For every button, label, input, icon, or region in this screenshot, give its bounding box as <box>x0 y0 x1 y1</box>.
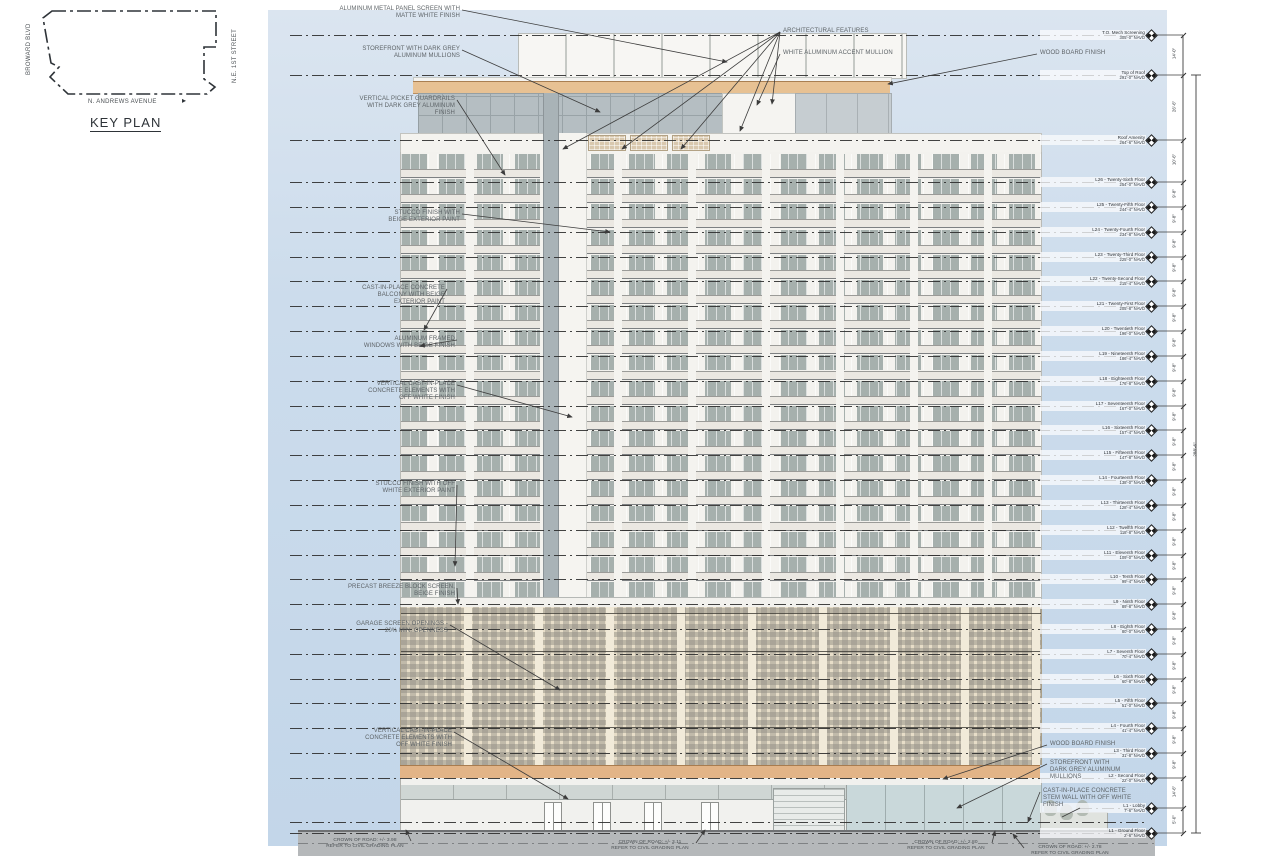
level-label: L25 - Twenty-Fifth Floor244'-4" NAVD <box>1040 202 1146 212</box>
spandrel <box>401 219 1041 227</box>
level-line <box>290 555 1145 556</box>
level-label: L4 - Fourth Floor41'-4" NAVD <box>1040 723 1146 733</box>
spandrel <box>401 421 1041 429</box>
level-line <box>290 679 1145 680</box>
annotation-label: PRECAST BREEZE BLOCK SCREEN, BEIGE FINIS… <box>295 584 455 598</box>
tower-floor <box>401 555 1041 581</box>
level-label: L16 - Sixteenth Floor157'-4" NAVD <box>1040 425 1146 435</box>
window-row <box>401 481 1041 496</box>
level-label: L11 - Eleventh Floor109'-0" NAVD <box>1040 550 1146 560</box>
dim-label: 9'-8" <box>1172 206 1177 230</box>
dim-tick <box>1180 528 1186 534</box>
dim-tick <box>1180 577 1186 583</box>
level-line <box>290 331 1145 332</box>
dim-tick <box>1180 806 1186 812</box>
level-label: Roof Amenity264'-6" NAVD <box>1040 135 1146 145</box>
dim-label: 9'-8" <box>1172 752 1177 776</box>
spandrel <box>401 522 1041 530</box>
annotation-label: WOOD BOARD FINISH <box>1040 50 1105 57</box>
level-line <box>290 654 1145 655</box>
spandrel <box>401 496 1041 504</box>
key-plan-street-bottom: N. ANDREWS AVENUE <box>88 99 157 105</box>
annotation-label: STOREFRONT WITH DARK GREY ALUMINUM MULLI… <box>1050 760 1120 781</box>
spandrel <box>401 320 1041 328</box>
storefront-door <box>644 802 662 832</box>
level-label: L3 - Third Floor31'-8" NAVD <box>1040 748 1146 758</box>
key-plan-title: KEY PLAN <box>90 115 161 132</box>
elevation-sheet: BROWARD BLVD N.E. 1ST STREET N. ANDREWS … <box>0 0 1269 864</box>
architectural-feature <box>672 135 710 151</box>
annotation-label: VERTICAL CAST-IN-PLACE CONCRETE ELEMENTS… <box>292 728 452 749</box>
level-line <box>290 778 1145 779</box>
spandrel <box>401 371 1041 379</box>
window-row <box>401 381 1041 396</box>
level-label: L6 - Sixth Floor60'-8" NAVD <box>1040 674 1146 684</box>
annotation-label: STUCCO FINISH WITH BEIGE EXTERIOR PAINT <box>300 210 460 224</box>
spandrel <box>401 345 1041 353</box>
dim-tick <box>1180 33 1186 39</box>
annotation-label: CAST-IN-PLACE CONCRETE BALCONY WITH BEIG… <box>285 285 445 306</box>
level-line <box>290 140 1145 141</box>
tower-facade <box>400 152 1042 605</box>
spandrel <box>401 446 1041 454</box>
dim-tick <box>1180 701 1186 707</box>
level-line <box>290 35 1145 36</box>
level-line <box>290 579 1145 580</box>
tower-floor <box>401 454 1041 480</box>
tower-wide-pier <box>557 133 587 605</box>
level-line <box>290 530 1145 531</box>
level-line <box>290 833 1145 834</box>
spandrel <box>401 396 1041 404</box>
level-line <box>290 604 1145 605</box>
dim-label: 9'-8" <box>1172 355 1177 379</box>
annotation-label: GARAGE SCREEN OPENINGS - 20% MIN. OPENNE… <box>288 621 448 635</box>
window-row <box>401 330 1041 345</box>
spandrel <box>401 245 1041 253</box>
tower-floor <box>401 353 1041 379</box>
level-label: L21 - Twenty-First Floor205'-8" NAVD <box>1040 301 1146 311</box>
dim-label: 9'-8" <box>1172 578 1177 602</box>
architectural-feature <box>630 135 668 151</box>
grade-dash-line <box>290 822 1145 823</box>
dim-label: 9'-8" <box>1172 653 1177 677</box>
dim-label: 9'-8" <box>1172 479 1177 503</box>
tower-floor <box>401 379 1041 405</box>
garage-facade <box>400 607 1042 765</box>
tower-floor <box>401 530 1041 556</box>
dim-tick <box>1180 553 1186 559</box>
level-label: L23 - Twenty-Third Floor225'-0" NAVD <box>1040 252 1146 262</box>
dim-label: 9'-8" <box>1172 529 1177 553</box>
level-label: L5 - Fifth Floor51'-0" NAVD <box>1040 698 1146 708</box>
dim-tick <box>1180 404 1186 410</box>
dim-label: 9'-8" <box>1172 603 1177 627</box>
level-line <box>290 306 1145 307</box>
level-label: L18 - Eighteenth Floor176'-8" NAVD <box>1040 376 1146 386</box>
window-row <box>401 406 1041 421</box>
dim-tick <box>1180 726 1186 732</box>
level-label: Top of Roof291'-0" NAVD <box>1040 70 1146 80</box>
level-label: L24 - Twenty-Fourth Floor234'-8" NAVD <box>1040 227 1146 237</box>
level-label: L20 - Twentieth Floor196'-0" NAVD <box>1040 326 1146 336</box>
annotation-label: WHITE ALUMINUM ACCENT MULLION <box>783 50 893 57</box>
spandrel <box>401 547 1041 555</box>
window-row <box>401 506 1041 521</box>
level-label: L15 - Fifteenth Floor147'-8" NAVD <box>1040 450 1146 460</box>
window-row <box>401 154 1041 169</box>
dim-tick <box>1180 453 1186 459</box>
level-line <box>290 430 1145 431</box>
spandrel <box>401 471 1041 479</box>
tower-floor <box>401 404 1041 430</box>
level-line <box>290 703 1145 704</box>
level-label: L13 - Thirteenth Floor128'-4" NAVD <box>1040 500 1146 510</box>
north-arrow-icon: ▸ <box>182 96 186 105</box>
architectural-feature <box>588 135 626 151</box>
level-label: T.O. Mech Screening305'-0" NAVD <box>1040 30 1146 40</box>
level-label: L17 - Seventeenth Floor167'-0" NAVD <box>1040 401 1146 411</box>
level-line <box>290 281 1145 282</box>
level-line <box>290 75 1145 76</box>
road-dash-line <box>298 843 1155 844</box>
dim-label: 9'-8" <box>1172 504 1177 528</box>
dim-tick <box>1180 255 1186 261</box>
dim-tick <box>1180 831 1186 837</box>
dim-tick <box>1180 602 1186 608</box>
dim-label: 9'-8" <box>1172 280 1177 304</box>
level-line <box>290 505 1145 506</box>
dim-label: 9'-8" <box>1172 678 1177 702</box>
annotation-label: ALUMINUM FRAMED WINDOWS WITH BEIGE FINIS… <box>295 336 455 350</box>
level-label: L9 - Ninth Floor89'-8" NAVD <box>1040 599 1146 609</box>
amenity-right-glass <box>795 93 892 135</box>
level-line <box>290 207 1145 208</box>
spandrel <box>401 270 1041 278</box>
dim-tick <box>1180 379 1186 385</box>
key-plan: BROWARD BLVD N.E. 1ST STREET N. ANDREWS … <box>10 5 260 145</box>
dim-label: 5'-0" <box>1172 807 1177 831</box>
level-label: L22 - Twenty-Second Floor215'-4" NAVD <box>1040 276 1146 286</box>
dim-label: 9'-8" <box>1172 454 1177 478</box>
core-strip <box>543 93 559 605</box>
dim-label: 9'-8" <box>1172 429 1177 453</box>
overall-dim-label: 288'-6" <box>1193 442 1198 456</box>
annotation-label: ARCHITECTURAL FEATURES <box>783 28 869 35</box>
dim-tick <box>1180 776 1186 782</box>
level-line <box>290 406 1145 407</box>
level-line <box>290 232 1145 233</box>
dim-tick <box>1180 73 1186 79</box>
dim-tick <box>1180 478 1186 484</box>
storefront-door <box>593 802 611 832</box>
dim-tick <box>1180 627 1186 633</box>
dim-label: 9'-8" <box>1172 181 1177 205</box>
level-line <box>290 182 1145 183</box>
dim-label: 9'-8" <box>1172 554 1177 578</box>
roller-shutter <box>773 788 845 832</box>
annotation-label: VERTICAL PICKET GUARDRAILS WITH DARK GRE… <box>295 96 455 117</box>
dim-tick <box>1180 677 1186 683</box>
dim-tick <box>1180 354 1186 360</box>
ground-glass-right <box>846 785 1042 830</box>
dim-tick <box>1180 428 1186 434</box>
tower-floor <box>401 429 1041 455</box>
window-row <box>401 582 1041 597</box>
dim-label: 14'-0" <box>1172 42 1177 66</box>
annotation-label: VERTICAL CAST-IN-PLACE CONCRETE ELEMENTS… <box>295 381 455 402</box>
annotation-label: CAST-IN-PLACE CONCRETE STEM WALL WITH OF… <box>1043 788 1131 809</box>
annotation-label: CROWN OF ROAD: +/- 3.98 REFER TO CIVIL G… <box>317 838 413 849</box>
annotation-label: CROWN OF ROAD: +/- 2.80 REFER TO CIVIL G… <box>898 840 994 851</box>
dim-tick <box>1180 503 1186 509</box>
dim-tick <box>1180 205 1186 211</box>
dim-tick <box>1180 279 1186 285</box>
dim-tick <box>1180 304 1186 310</box>
annotation-label: CROWN OF ROAD: +/- 2.78 REFER TO CIVIL G… <box>1022 845 1118 856</box>
level-label: L8 - Eighth Floor80'-0" NAVD <box>1040 624 1146 634</box>
key-plan-street-left: BROWARD BLVD <box>26 23 32 75</box>
dim-label: 10'-6" <box>1172 148 1177 172</box>
window-row <box>401 305 1041 320</box>
spandrel <box>401 169 1041 177</box>
dim-label: 14'-6" <box>1172 780 1177 804</box>
tower-floor <box>401 328 1041 354</box>
level-label: L1 - Ground Floor2'-6" NAVD <box>1040 828 1146 838</box>
annotation-label: STOREFRONT WITH DARK GREY ALUMINUM MULLI… <box>300 46 460 60</box>
level-line <box>290 455 1145 456</box>
dim-tick <box>1180 652 1186 658</box>
level-label: L7 - Seventh Floor70'-4" NAVD <box>1040 649 1146 659</box>
spandrel <box>401 295 1041 303</box>
level-label: L10 - Tenth Floor99'-4" NAVD <box>1040 574 1146 584</box>
amenity-white-panel <box>722 93 797 135</box>
level-line <box>290 257 1145 258</box>
dim-label: 9'-8" <box>1172 380 1177 404</box>
annotation-label: CROWN OF ROAD: +/- 3.11 REFER TO CIVIL G… <box>602 840 698 851</box>
window-row <box>401 456 1041 471</box>
window-row <box>401 280 1041 295</box>
level-label: L26 - Twenty-Sixth Floor254'-0" NAVD <box>1040 177 1146 187</box>
window-row <box>401 557 1041 572</box>
window-row <box>401 431 1041 446</box>
dim-tick <box>1180 751 1186 757</box>
window-row <box>401 532 1041 547</box>
level-label: L12 - Twelfth Floor118'-8" NAVD <box>1040 525 1146 535</box>
dim-tick <box>1180 329 1186 335</box>
dim-label: 26'-6" <box>1172 94 1177 118</box>
tower-floor <box>401 479 1041 505</box>
storefront-door <box>544 802 562 832</box>
dim-label: 9'-8" <box>1172 256 1177 280</box>
annotation-label: WOOD BOARD FINISH <box>1050 741 1115 748</box>
dim-label: 9'-8" <box>1172 727 1177 751</box>
annotation-label: STUCCO FINISH WITH OFF WHITE EXTERIOR PA… <box>295 481 455 495</box>
storefront-door <box>701 802 719 832</box>
level-label: L14 - Fourteenth Floor138'-0" NAVD <box>1040 475 1146 485</box>
level-line <box>290 356 1145 357</box>
tower-floor <box>401 152 1041 178</box>
dim-tick <box>1180 138 1186 144</box>
level-label: L19 - Nineteenth Floor186'-4" NAVD <box>1040 351 1146 361</box>
dim-label: 9'-8" <box>1172 405 1177 429</box>
dim-tick <box>1180 230 1186 236</box>
dim-label: 9'-8" <box>1172 628 1177 652</box>
dim-label: 9'-8" <box>1172 702 1177 726</box>
dim-label: 9'-8" <box>1172 330 1177 354</box>
annotation-label: ALUMINUM METAL PANEL SCREEN WITH MATTE W… <box>300 6 460 20</box>
tower-top-band <box>400 133 1042 154</box>
dim-tick <box>1180 180 1186 186</box>
spandrel <box>401 194 1041 202</box>
tower-floor <box>401 504 1041 530</box>
window-row <box>401 355 1041 370</box>
dim-label: 9'-8" <box>1172 305 1177 329</box>
level-line <box>290 753 1145 754</box>
key-plan-street-right: N.E. 1ST STREET <box>232 29 238 83</box>
dim-label: 9'-8" <box>1172 231 1177 255</box>
